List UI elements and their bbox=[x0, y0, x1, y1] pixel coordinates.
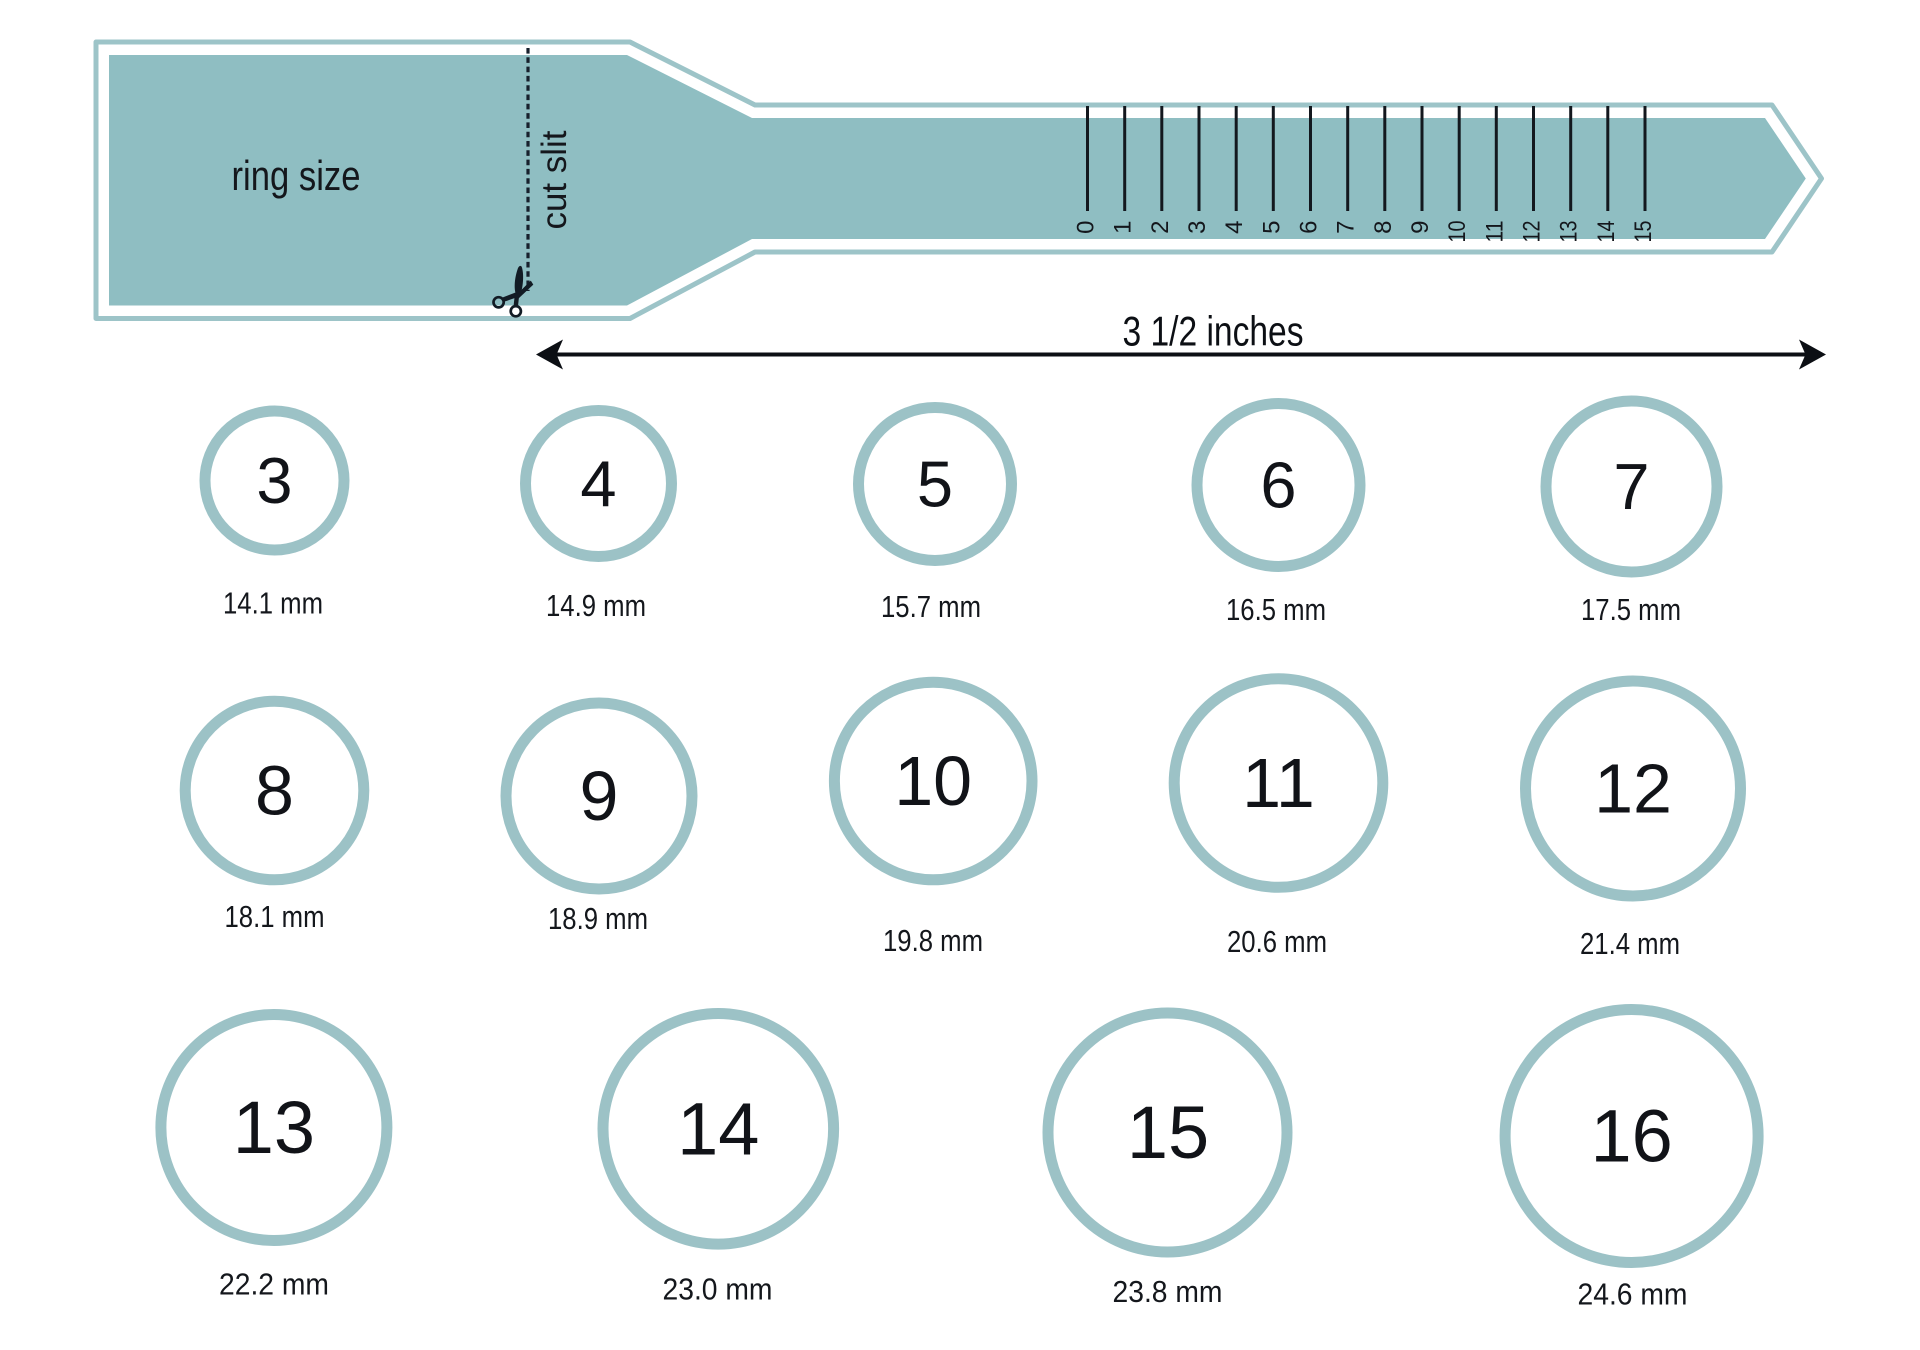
svg-text:15.7 mm: 15.7 mm bbox=[881, 589, 981, 624]
svg-text:24.6 mm: 24.6 mm bbox=[1578, 1277, 1688, 1312]
svg-text:16: 16 bbox=[1590, 1095, 1672, 1178]
svg-text:21.4 mm: 21.4 mm bbox=[1580, 926, 1680, 961]
svg-text:18.9 mm: 18.9 mm bbox=[548, 901, 648, 936]
svg-text:13: 13 bbox=[233, 1086, 315, 1169]
svg-text:23.8 mm: 23.8 mm bbox=[1113, 1274, 1223, 1309]
svg-text:23.0 mm: 23.0 mm bbox=[663, 1272, 773, 1307]
svg-text:6: 6 bbox=[1260, 448, 1296, 521]
svg-text:15: 15 bbox=[1630, 221, 1657, 243]
svg-text:ring size: ring size bbox=[232, 152, 361, 199]
svg-text:9: 9 bbox=[1407, 221, 1434, 234]
svg-text:7: 7 bbox=[1333, 221, 1360, 234]
svg-text:12: 12 bbox=[1594, 750, 1672, 828]
svg-text:11: 11 bbox=[1481, 221, 1508, 243]
svg-text:14.1 mm: 14.1 mm bbox=[223, 586, 323, 621]
svg-text:0: 0 bbox=[1073, 221, 1100, 234]
svg-text:5: 5 bbox=[1258, 221, 1285, 234]
svg-text:4: 4 bbox=[580, 447, 616, 520]
svg-text:3 1/2 inches: 3 1/2 inches bbox=[1123, 308, 1304, 355]
svg-text:7: 7 bbox=[1613, 450, 1649, 523]
svg-text:22.2 mm: 22.2 mm bbox=[219, 1267, 329, 1302]
svg-text:2: 2 bbox=[1147, 221, 1174, 234]
svg-text:16.5 mm: 16.5 mm bbox=[1226, 592, 1326, 627]
svg-text:14: 14 bbox=[1593, 221, 1620, 243]
svg-text:14: 14 bbox=[677, 1087, 759, 1170]
svg-text:5: 5 bbox=[917, 447, 953, 520]
svg-text:18.1 mm: 18.1 mm bbox=[225, 899, 325, 934]
svg-text:8: 8 bbox=[255, 752, 294, 830]
svg-text:20.6 mm: 20.6 mm bbox=[1227, 924, 1327, 959]
svg-text:12: 12 bbox=[1519, 221, 1546, 243]
svg-text:9: 9 bbox=[580, 757, 619, 835]
svg-text:3: 3 bbox=[1184, 221, 1211, 234]
svg-text:4: 4 bbox=[1221, 221, 1248, 234]
svg-text:14.9 mm: 14.9 mm bbox=[546, 588, 646, 623]
svg-text:6: 6 bbox=[1296, 221, 1323, 234]
svg-text:10: 10 bbox=[894, 742, 972, 820]
svg-text:8: 8 bbox=[1370, 221, 1397, 234]
svg-text:11: 11 bbox=[1242, 744, 1315, 822]
svg-text:10: 10 bbox=[1444, 221, 1471, 243]
svg-text:3: 3 bbox=[256, 444, 292, 517]
svg-text:15: 15 bbox=[1127, 1091, 1209, 1174]
svg-text:19.8 mm: 19.8 mm bbox=[883, 923, 983, 958]
svg-text:13: 13 bbox=[1556, 221, 1583, 243]
svg-text:1: 1 bbox=[1110, 221, 1137, 234]
svg-text:17.5 mm: 17.5 mm bbox=[1581, 592, 1681, 627]
svg-text:cut slit: cut slit bbox=[535, 130, 574, 229]
